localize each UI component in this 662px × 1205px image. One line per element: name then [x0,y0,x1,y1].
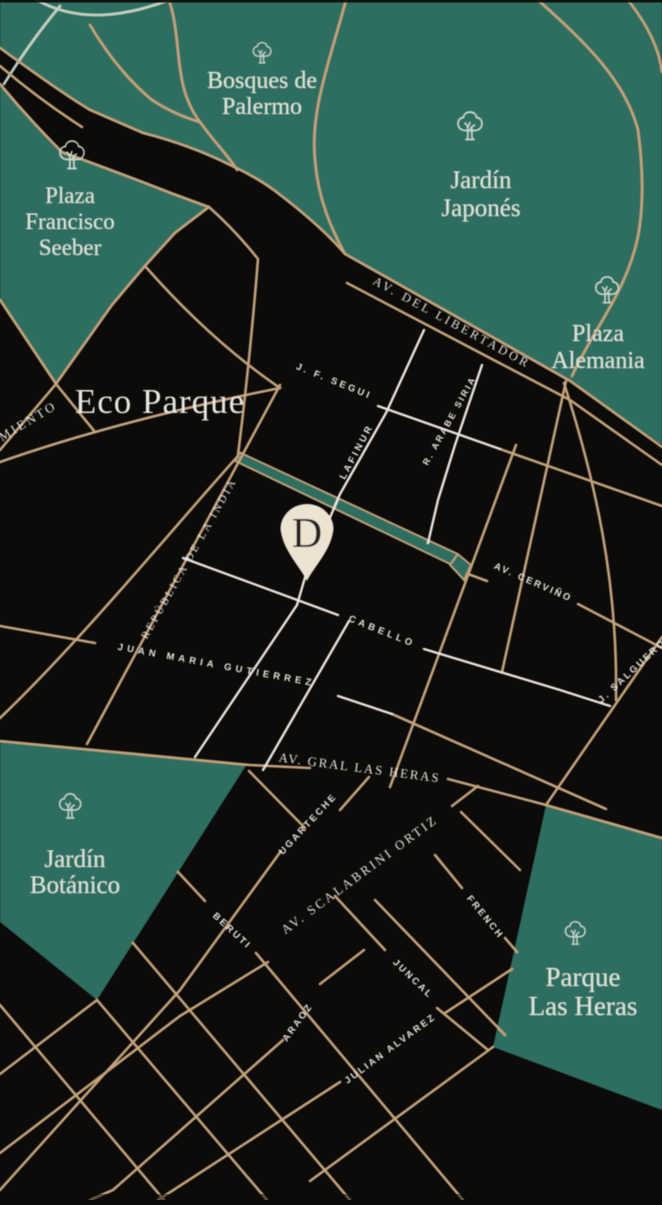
svg-text:Alemania: Alemania [551,348,645,374]
svg-text:D: D [292,511,322,557]
svg-text:Eco Parque: Eco Parque [75,382,245,421]
svg-text:Bosques de: Bosques de [207,68,317,94]
svg-text:Seeber: Seeber [39,235,102,260]
svg-text:Las Heras: Las Heras [529,991,638,1021]
svg-text:Plaza: Plaza [45,183,95,208]
svg-text:Palermo: Palermo [222,94,302,120]
svg-text:Jardín: Jardín [450,167,512,194]
svg-text:Botánico: Botánico [30,872,120,899]
svg-text:Parque: Parque [546,962,621,992]
svg-text:Francisco: Francisco [25,209,114,234]
svg-text:Plaza: Plaza [572,321,624,347]
svg-text:Japonés: Japonés [441,195,520,222]
svg-text:Jardín: Jardín [44,846,106,873]
